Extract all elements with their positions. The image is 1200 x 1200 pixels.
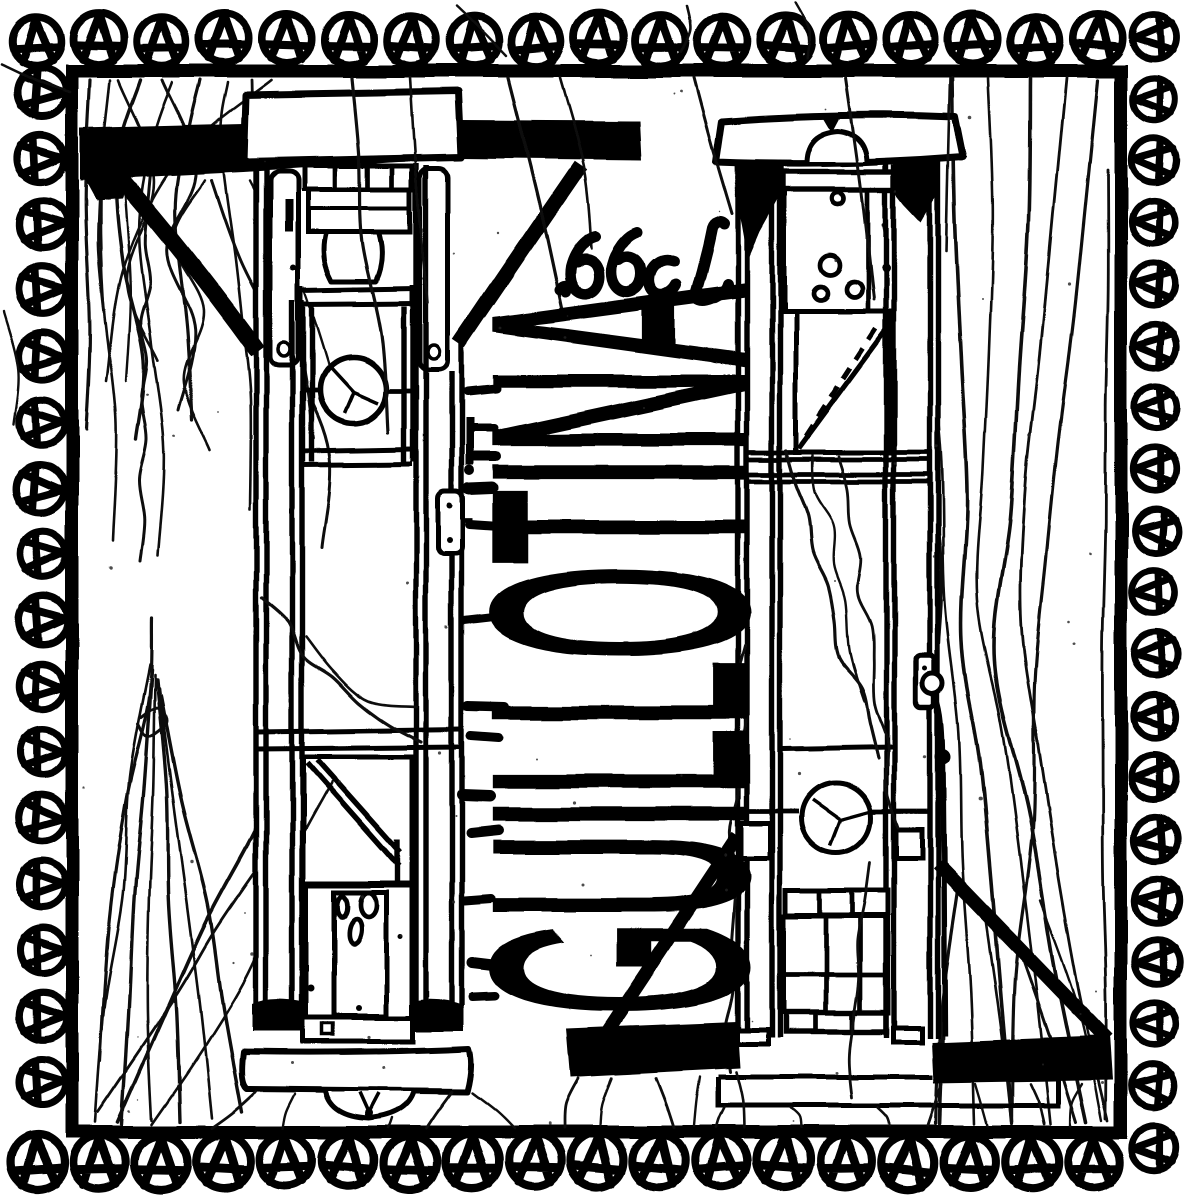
svg-text:GUILLOTINA: GUILLOTINA — [419, 283, 821, 1016]
